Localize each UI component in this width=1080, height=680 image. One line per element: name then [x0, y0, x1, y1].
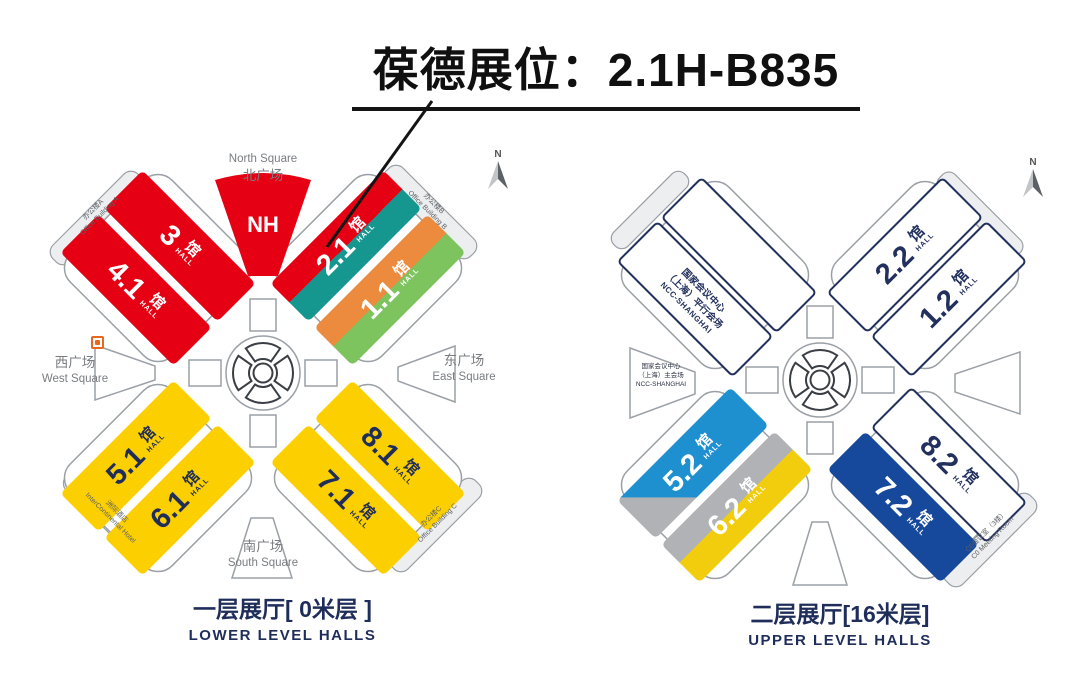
label-east-square: 东广场 East Square [408, 352, 520, 384]
hall-nh-label: NH [247, 212, 279, 237]
ncc-main-venue-label: 国家会议中心 （上海）主会场 NCC-SHANGHAI [623, 363, 699, 389]
compass-icon-lower: N [483, 146, 513, 192]
metro-icon [91, 336, 104, 349]
upper-caption: 二层展厅[16米层] UPPER LEVEL HALLS [595, 595, 1080, 649]
label-south-square: 南广场 South Square [203, 538, 323, 570]
lower-caption: 一层展厅[ 0米层 ] LOWER LEVEL HALLS [25, 590, 540, 644]
booth-title: 葆德展位：2.1H-B835 [352, 34, 860, 111]
compass-icon-upper: N [1018, 154, 1048, 200]
central-hub [189, 299, 337, 447]
svg-text:N: N [494, 149, 501, 160]
lower-level-map: NH 3 馆HALL 4.1 馆HALL 2.1 馆HALL 1.1 馆HALL… [25, 140, 540, 670]
label-north-square: North Square 北广场 [203, 152, 323, 184]
upper-level-map: 国家会议中心 （上海）主会场 NCC-SHANGHAI 国家会议中心 （上海）平… [595, 150, 1080, 670]
label-west-square: 西广场 West Square [19, 354, 131, 386]
hall-nh: NH [231, 212, 295, 238]
page-root: { "title": "葆德展位：2.1H-B835", "labels": {… [0, 0, 1080, 670]
upper-east-arm [955, 352, 1020, 414]
upper-south-arm [793, 522, 847, 585]
svg-text:N: N [1029, 157, 1036, 168]
